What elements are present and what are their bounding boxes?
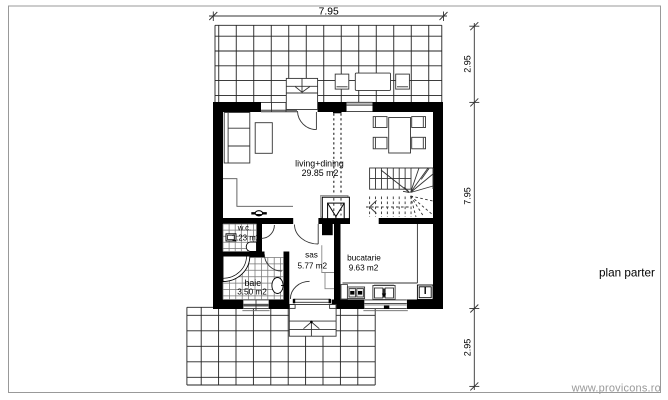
svg-text:9.63 m2: 9.63 m2: [349, 264, 379, 273]
svg-text:baie: baie: [244, 278, 261, 288]
svg-text:plan parter: plan parter: [599, 267, 655, 280]
svg-text:bucatarie: bucatarie: [347, 253, 381, 262]
svg-text:5.77 m2: 5.77 m2: [298, 262, 328, 271]
svg-text:1.23 m2: 1.23 m2: [232, 233, 260, 242]
svg-text:7.95: 7.95: [463, 187, 473, 205]
svg-text:2.95: 2.95: [463, 339, 473, 357]
svg-text:w.c.: w.c.: [237, 224, 251, 233]
svg-text:www.provicons.ro: www.provicons.ro: [571, 382, 661, 394]
svg-text:2.95: 2.95: [463, 55, 473, 73]
svg-text:7.95: 7.95: [319, 7, 339, 18]
svg-text:3.50 m2: 3.50 m2: [237, 288, 267, 297]
svg-text:29.85 m2: 29.85 m2: [302, 168, 339, 178]
svg-text:sas: sas: [305, 251, 318, 260]
